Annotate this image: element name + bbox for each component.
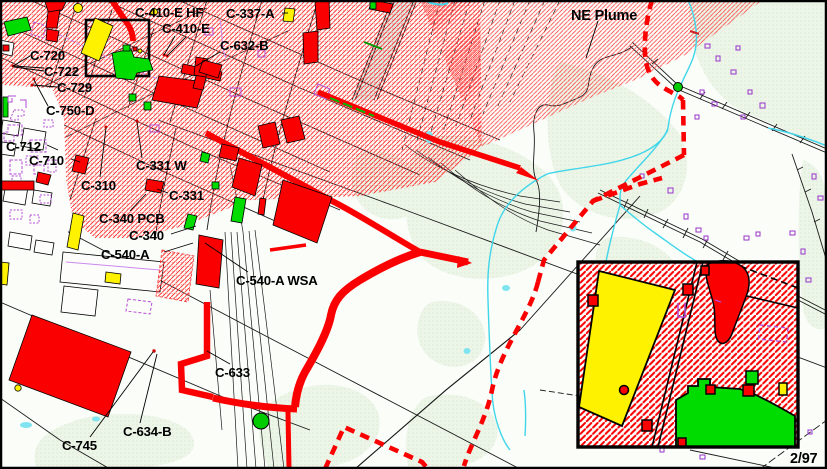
svg-text:C-540-A: C-540-A	[101, 247, 150, 262]
svg-text:C-710: C-710	[29, 153, 64, 168]
svg-text:C-722: C-722	[44, 64, 79, 79]
svg-text:2/97: 2/97	[790, 451, 818, 467]
svg-text:C-331 W: C-331 W	[136, 158, 187, 173]
svg-text:C-634-B: C-634-B	[123, 424, 171, 439]
svg-text:C-720: C-720	[30, 48, 65, 63]
svg-text:NE Plume: NE Plume	[571, 8, 637, 24]
svg-text:C-633: C-633	[215, 365, 250, 380]
svg-text:C-310: C-310	[81, 178, 116, 193]
svg-text:C-410-E: C-410-E	[162, 21, 210, 36]
svg-text:C-410-E HF: C-410-E HF	[135, 5, 203, 20]
svg-text:C-632-B: C-632-B	[220, 38, 268, 53]
svg-text:C-340 PCB: C-340 PCB	[99, 211, 165, 226]
svg-text:C-340: C-340	[129, 228, 164, 243]
svg-text:C-331: C-331	[169, 188, 204, 203]
svg-text:C-729: C-729	[57, 80, 92, 95]
svg-text:C-750-D: C-750-D	[46, 103, 94, 118]
svg-text:C-540-A WSA: C-540-A WSA	[236, 273, 318, 288]
svg-text:C-337-A: C-337-A	[226, 6, 275, 21]
svg-text:C-745: C-745	[62, 438, 97, 453]
svg-text:C-712: C-712	[6, 139, 41, 154]
